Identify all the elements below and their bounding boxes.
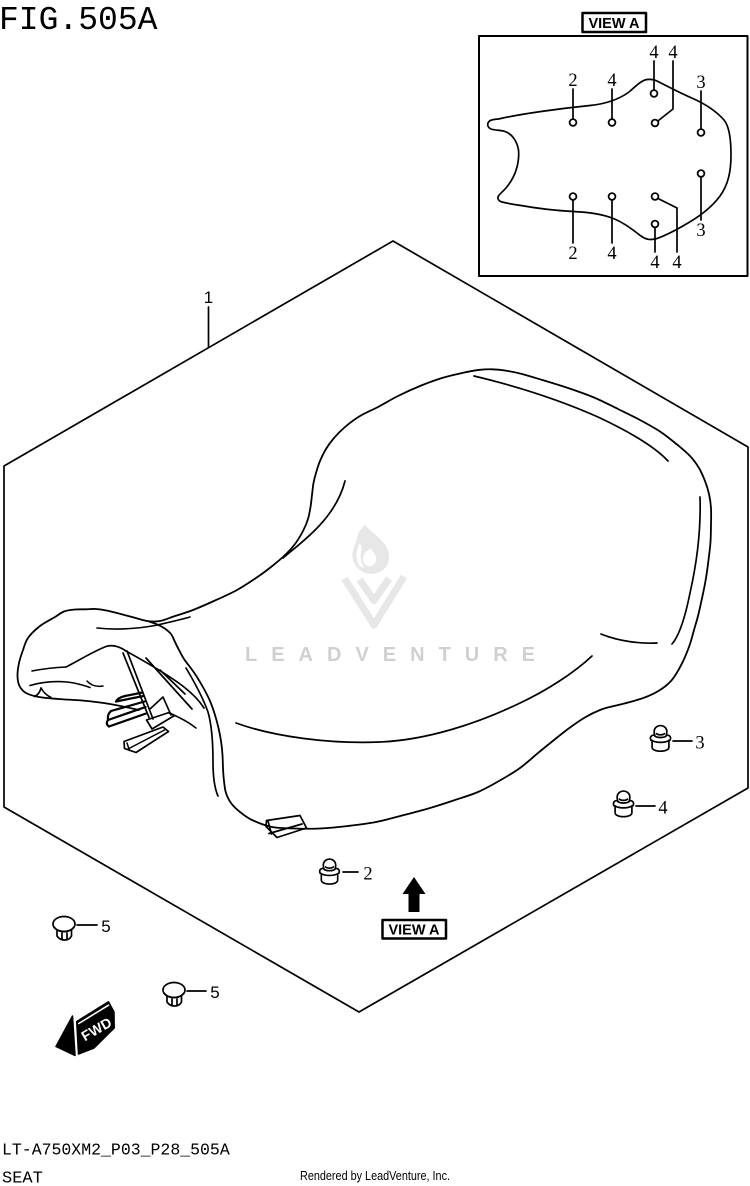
svg-text:5: 5 (101, 917, 110, 936)
svg-text:Rendered by LeadVenture, Inc.: Rendered by LeadVenture, Inc. (300, 1169, 450, 1183)
svg-text:2: 2 (568, 244, 577, 264)
svg-text:VIEW A: VIEW A (388, 923, 440, 939)
svg-text:FIG.505A: FIG.505A (0, 2, 158, 39)
svg-text:3: 3 (696, 221, 705, 241)
svg-text:SEAT: SEAT (2, 1170, 43, 1186)
svg-text:VIEW A: VIEW A (588, 16, 640, 32)
svg-text:4: 4 (672, 253, 681, 273)
svg-text:3: 3 (695, 734, 704, 754)
svg-text:4: 4 (649, 43, 658, 63)
svg-text:4: 4 (668, 43, 677, 63)
svg-text:LEADVENTURE: LEADVENTURE (245, 644, 549, 666)
svg-text:4: 4 (607, 71, 616, 91)
svg-text:3: 3 (696, 73, 705, 93)
svg-text:1: 1 (204, 288, 213, 307)
svg-text:LT-A750XM2_P03_P28_505A: LT-A750XM2_P03_P28_505A (2, 1141, 230, 1160)
svg-text:4: 4 (607, 244, 616, 264)
svg-text:5: 5 (210, 983, 219, 1002)
svg-text:2: 2 (568, 71, 577, 91)
svg-text:2: 2 (363, 865, 372, 885)
svg-text:4: 4 (650, 253, 659, 273)
svg-text:4: 4 (658, 799, 667, 819)
